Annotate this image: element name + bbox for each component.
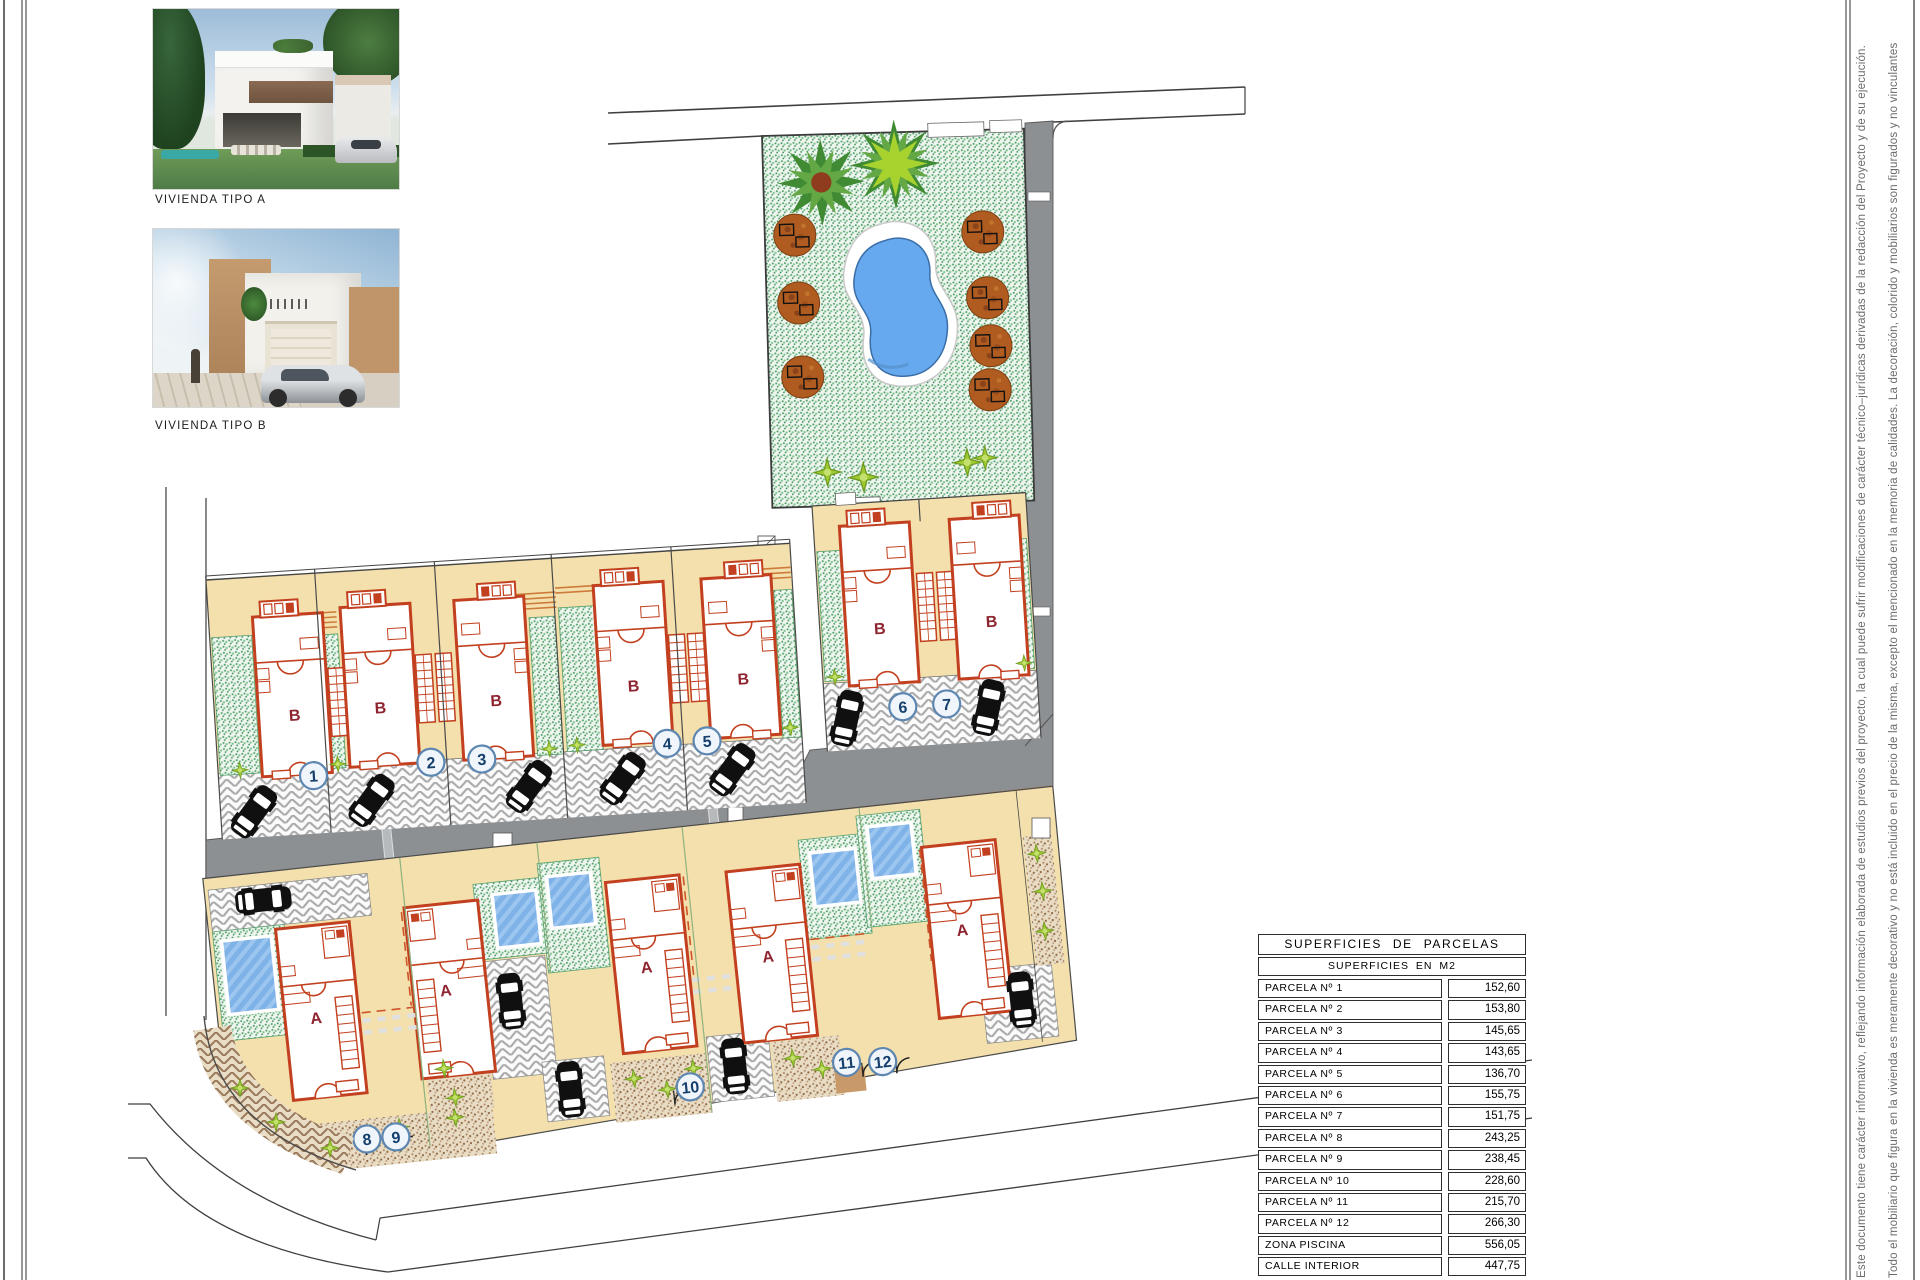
table-row: PARCELA Nº 3145,65: [1258, 1022, 1526, 1041]
table-row: PARCELA Nº 6155,75: [1258, 1086, 1526, 1105]
table-row: PARCELA Nº 2153,80: [1258, 1000, 1526, 1019]
table-row: PARCELA Nº 1152,60: [1258, 979, 1526, 998]
palm-tree: [152, 8, 205, 149]
table-row: PARCELA Nº 7151,75: [1258, 1107, 1526, 1126]
surface-table: SUPERFICIES DE PARCELAS SUPERFICIES EN M…: [1258, 934, 1526, 1280]
terrace-furniture: [231, 145, 281, 155]
parcel-number-6: 6: [888, 692, 917, 721]
plan-sheet: B B B B B 1 2 3 4 5: [0, 0, 1920, 1280]
house-label: B: [288, 707, 301, 725]
margin-note-1: Este documento tiene carácter informativ…: [1856, 10, 1868, 1278]
house-parcel-6: [838, 507, 919, 689]
table-row: PARCELA Nº 9238,45: [1258, 1150, 1526, 1169]
house-label: A: [309, 1010, 323, 1028]
house-label: B: [374, 700, 387, 718]
house-label: B: [874, 621, 887, 639]
svg-text:10: 10: [681, 1079, 701, 1098]
photo-vivienda-a: [152, 8, 400, 190]
table-row: PARCELA Nº 12266,30: [1258, 1214, 1526, 1233]
table-row: PARCELA Nº 11215,70: [1258, 1193, 1526, 1212]
table-subtitle: SUPERFICIES EN M2: [1258, 957, 1526, 976]
table-row: PARCELA Nº 8243,25: [1258, 1129, 1526, 1148]
svg-text:1: 1: [309, 768, 319, 786]
parcel-number-1: 1: [299, 761, 328, 790]
house-label: B: [737, 671, 750, 689]
parcel-number-3: 3: [467, 745, 496, 774]
parcel-number-4: 4: [653, 729, 682, 758]
table-row: ZONA PISCINA556,05: [1258, 1236, 1526, 1255]
site-plan: B B B B B 1 2 3 4 5: [0, 0, 1920, 1280]
parcel-number-7: 7: [932, 690, 961, 719]
lap-pool: [161, 150, 219, 159]
svg-text:12: 12: [873, 1054, 893, 1073]
svg-text:7: 7: [942, 697, 952, 715]
house-parcel-3: [453, 581, 534, 763]
table-row: PARCELA Nº 4143,65: [1258, 1043, 1526, 1062]
house-label: B: [985, 614, 998, 632]
house-parcel-2: [339, 588, 420, 770]
house-label: B: [627, 678, 640, 696]
photo-b-caption: VIVIENDA TIPO B: [155, 420, 267, 432]
zona-piscina: [762, 114, 1035, 514]
photo-a-caption: VIVIENDA TIPO A: [155, 194, 266, 206]
house-parcel-5: [700, 560, 781, 742]
svg-text:5: 5: [702, 734, 712, 752]
house-label: B: [490, 693, 503, 711]
margin-note-2: Todo el mobiliario que figura en la vivi…: [1888, 10, 1900, 1278]
table-row: CALLE INTERIOR447,75: [1258, 1257, 1526, 1276]
svg-text:6: 6: [898, 699, 908, 717]
house-label: A: [439, 982, 453, 1000]
parcels-6-7: B B 6 7: [811, 482, 1041, 752]
photo-vivienda-b: [152, 228, 400, 408]
left-road: [166, 487, 206, 1102]
svg-text:2: 2: [426, 755, 436, 773]
roof-plants: [273, 39, 313, 53]
utility-box: [1032, 818, 1050, 838]
balcony-band: [249, 81, 333, 103]
palm-small: [241, 287, 267, 321]
svg-text:11: 11: [837, 1055, 856, 1074]
house-parcel-4: [592, 566, 673, 748]
table-title: SUPERFICIES DE PARCELAS: [1258, 934, 1526, 955]
svg-text:8: 8: [362, 1131, 373, 1149]
parcel-number-5: 5: [693, 727, 722, 756]
svg-text:3: 3: [477, 752, 487, 770]
house-label: A: [762, 948, 776, 966]
tan-block-right: [349, 287, 399, 379]
house-parcel-7: [948, 500, 1029, 682]
table-row: PARCELA Nº 10228,60: [1258, 1172, 1526, 1191]
house-label: A: [640, 959, 654, 977]
house-parcel-8: [276, 922, 368, 1101]
table-row: PARCELA Nº 5136,70: [1258, 1065, 1526, 1084]
person: [191, 349, 200, 383]
porch-shadow: [223, 113, 301, 147]
parcel-number-2: 2: [417, 748, 446, 777]
svg-text:4: 4: [662, 736, 672, 754]
parcels-1-5: B B B B B 1 2 3 4 5: [206, 539, 807, 844]
house-label: A: [956, 922, 970, 940]
svg-text:9: 9: [391, 1129, 402, 1147]
